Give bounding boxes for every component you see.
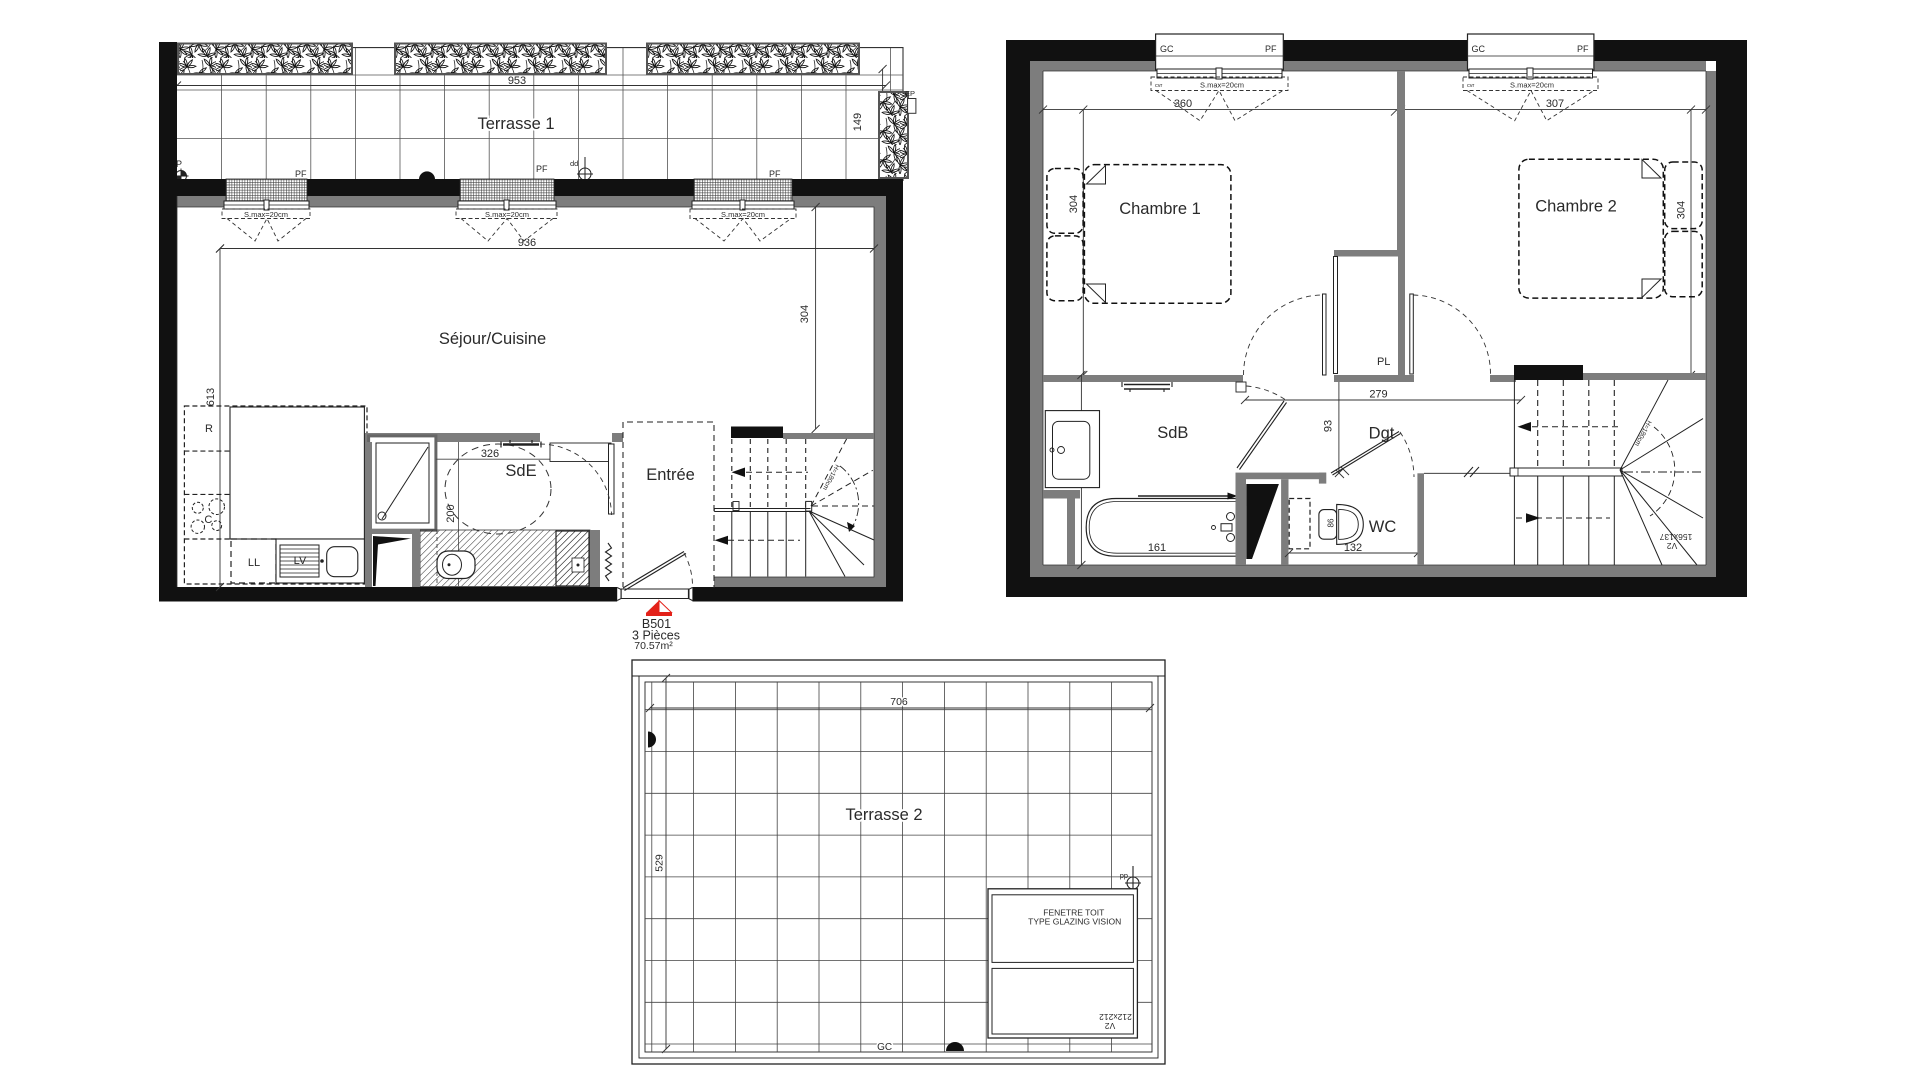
svg-text:529: 529 [654, 854, 666, 872]
svg-text:V2: V2 [1667, 541, 1678, 551]
svg-text:613: 613 [205, 388, 217, 406]
svg-text:PL: PL [1377, 356, 1390, 368]
svg-text:360: 360 [1174, 98, 1192, 110]
svg-text:C: C [204, 514, 212, 526]
svg-text:dd: dd [570, 159, 578, 168]
svg-text:WC: WC [1369, 518, 1397, 536]
svg-text:R: R [205, 423, 213, 435]
svg-text:279: 279 [1369, 389, 1387, 401]
svg-text:S.max=20cm: S.max=20cm [721, 210, 765, 219]
svg-text:cvr: cvr [1155, 83, 1163, 89]
svg-text:S.max=20cm: S.max=20cm [1200, 81, 1244, 90]
svg-text:93: 93 [1323, 420, 1335, 432]
svg-text:953: 953 [508, 75, 526, 87]
svg-text:304: 304 [1676, 201, 1688, 219]
svg-text:TYPE GLAZING VISION: TYPE GLAZING VISION [1028, 917, 1121, 927]
svg-text:SdB: SdB [1157, 424, 1188, 442]
svg-text:S.max=20cm: S.max=20cm [244, 210, 288, 219]
svg-text:Chambre 2: Chambre 2 [1535, 198, 1617, 216]
svg-text:EP: EP [905, 89, 915, 98]
svg-text:156x137: 156x137 [1659, 532, 1692, 542]
svg-text:S.max=20cm: S.max=20cm [1510, 81, 1554, 90]
svg-text:cvr: cvr [1467, 83, 1475, 89]
svg-text:Terrasse 2: Terrasse 2 [845, 806, 922, 824]
svg-text:PF: PF [769, 169, 781, 179]
svg-text:307: 307 [1546, 98, 1564, 110]
svg-text:706: 706 [890, 696, 908, 708]
svg-text:132: 132 [1344, 542, 1362, 554]
svg-text:936: 936 [518, 237, 536, 249]
svg-text:GC: GC [1160, 44, 1174, 54]
svg-text:304: 304 [799, 305, 811, 323]
svg-text:GC: GC [877, 1042, 892, 1053]
svg-text:S.max=20cm: S.max=20cm [485, 210, 529, 219]
svg-text:161: 161 [1148, 542, 1166, 554]
svg-text:V2: V2 [1105, 1021, 1116, 1031]
svg-text:70.57m²: 70.57m² [634, 640, 673, 652]
svg-text:SdE: SdE [505, 462, 536, 480]
svg-text:GC: GC [1472, 44, 1486, 54]
svg-text:86: 86 [1327, 518, 1336, 527]
svg-text:PF: PF [295, 169, 307, 179]
svg-text:PF: PF [1265, 44, 1277, 54]
svg-text:212x212: 212x212 [1099, 1012, 1132, 1022]
svg-text:PF: PF [1577, 44, 1589, 54]
svg-text:149: 149 [852, 113, 864, 131]
svg-text:200: 200 [445, 504, 457, 522]
svg-text:Entrée: Entrée [646, 466, 695, 484]
svg-text:Chambre 1: Chambre 1 [1119, 200, 1201, 218]
svg-text:PF: PF [536, 164, 548, 174]
svg-text:304: 304 [1068, 195, 1080, 213]
svg-text:Terrasse 1: Terrasse 1 [477, 115, 554, 133]
svg-text:Séjour/Cuisine: Séjour/Cuisine [439, 330, 546, 348]
svg-text:LL: LL [248, 557, 260, 569]
svg-text:dd: dd [1120, 872, 1128, 881]
svg-text:326: 326 [481, 448, 499, 460]
svg-text:LV: LV [294, 555, 307, 567]
